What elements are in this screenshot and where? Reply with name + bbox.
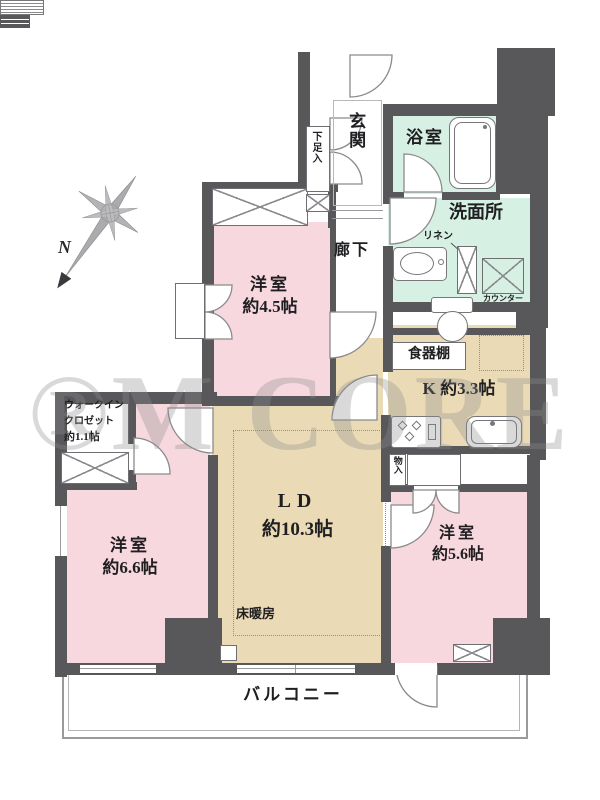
room-label-bathroom: 浴室 [389, 127, 461, 149]
window [237, 665, 355, 673]
room-size: 約6.6帖 [63, 557, 197, 579]
label-counter: カウンター [481, 294, 525, 304]
room-name: 洋室 [63, 535, 197, 557]
washbasin-bowl [400, 252, 434, 275]
watermark-text: ®M CORE [28, 352, 594, 476]
compass-north-label: N [57, 237, 72, 257]
washbasin-faucet [438, 259, 444, 265]
window-crossbox [453, 644, 491, 662]
compass-rose-icon [25, 153, 168, 311]
room-name: 洋室 [391, 524, 525, 545]
bathtub-drain [483, 125, 487, 129]
bifold-closet-4-5 [175, 283, 205, 339]
entrance-door-arc [350, 55, 392, 97]
room-label-washroom: 洗面所 [420, 201, 532, 224]
closet-crossbox [212, 188, 308, 226]
room-label-western-5-6: 洋室 約5.6帖 [391, 524, 525, 566]
room-label-balcony: バルコニー [62, 684, 524, 706]
room-label-western-6-6: 洋室 約6.6帖 [63, 535, 197, 579]
toilet-bowl [437, 311, 468, 342]
counter-crossbox [482, 258, 524, 294]
balcony-door-opening [395, 663, 437, 675]
room-size: 約4.5帖 [210, 296, 330, 318]
room-label-genkan: 玄関 [344, 112, 366, 150]
bathroom-door-arc [404, 154, 442, 192]
genkan-step-line [332, 210, 383, 211]
pillar-notch-box [220, 645, 237, 661]
room-size: 約10.3帖 [212, 518, 383, 543]
compass-north-arrow [52, 272, 71, 292]
closet-door-arc [436, 490, 459, 513]
window-mullion [295, 665, 296, 673]
window-glass-line [60, 506, 61, 556]
window [80, 665, 156, 673]
room-name: 洋室 [210, 274, 330, 296]
window-glass-line [237, 668, 355, 669]
room-size: 約5.6帖 [391, 545, 525, 566]
room-label-living-dining: LD 約10.3帖 [212, 488, 383, 543]
shoe-cabinet-crossbox [306, 194, 330, 212]
genkan-step-line [332, 218, 383, 219]
room-name: LD [212, 488, 383, 514]
room-label-corridor: 廊下 [334, 241, 370, 262]
room-label-shoe-cabinet: 下足入 [309, 131, 322, 164]
floor-plan: N 玄関 下足入 浴室 洗面所 リネン カウンター 廊下 洋室 約4.5帖 食器… [0, 0, 600, 800]
room-label-western-4-5: 洋室 約4.5帖 [210, 274, 330, 318]
label-linen: リネン [423, 230, 453, 243]
label-floor-heating: 床暖房 [236, 606, 275, 623]
window-glass-line [80, 668, 156, 669]
linen-closet [457, 246, 477, 294]
